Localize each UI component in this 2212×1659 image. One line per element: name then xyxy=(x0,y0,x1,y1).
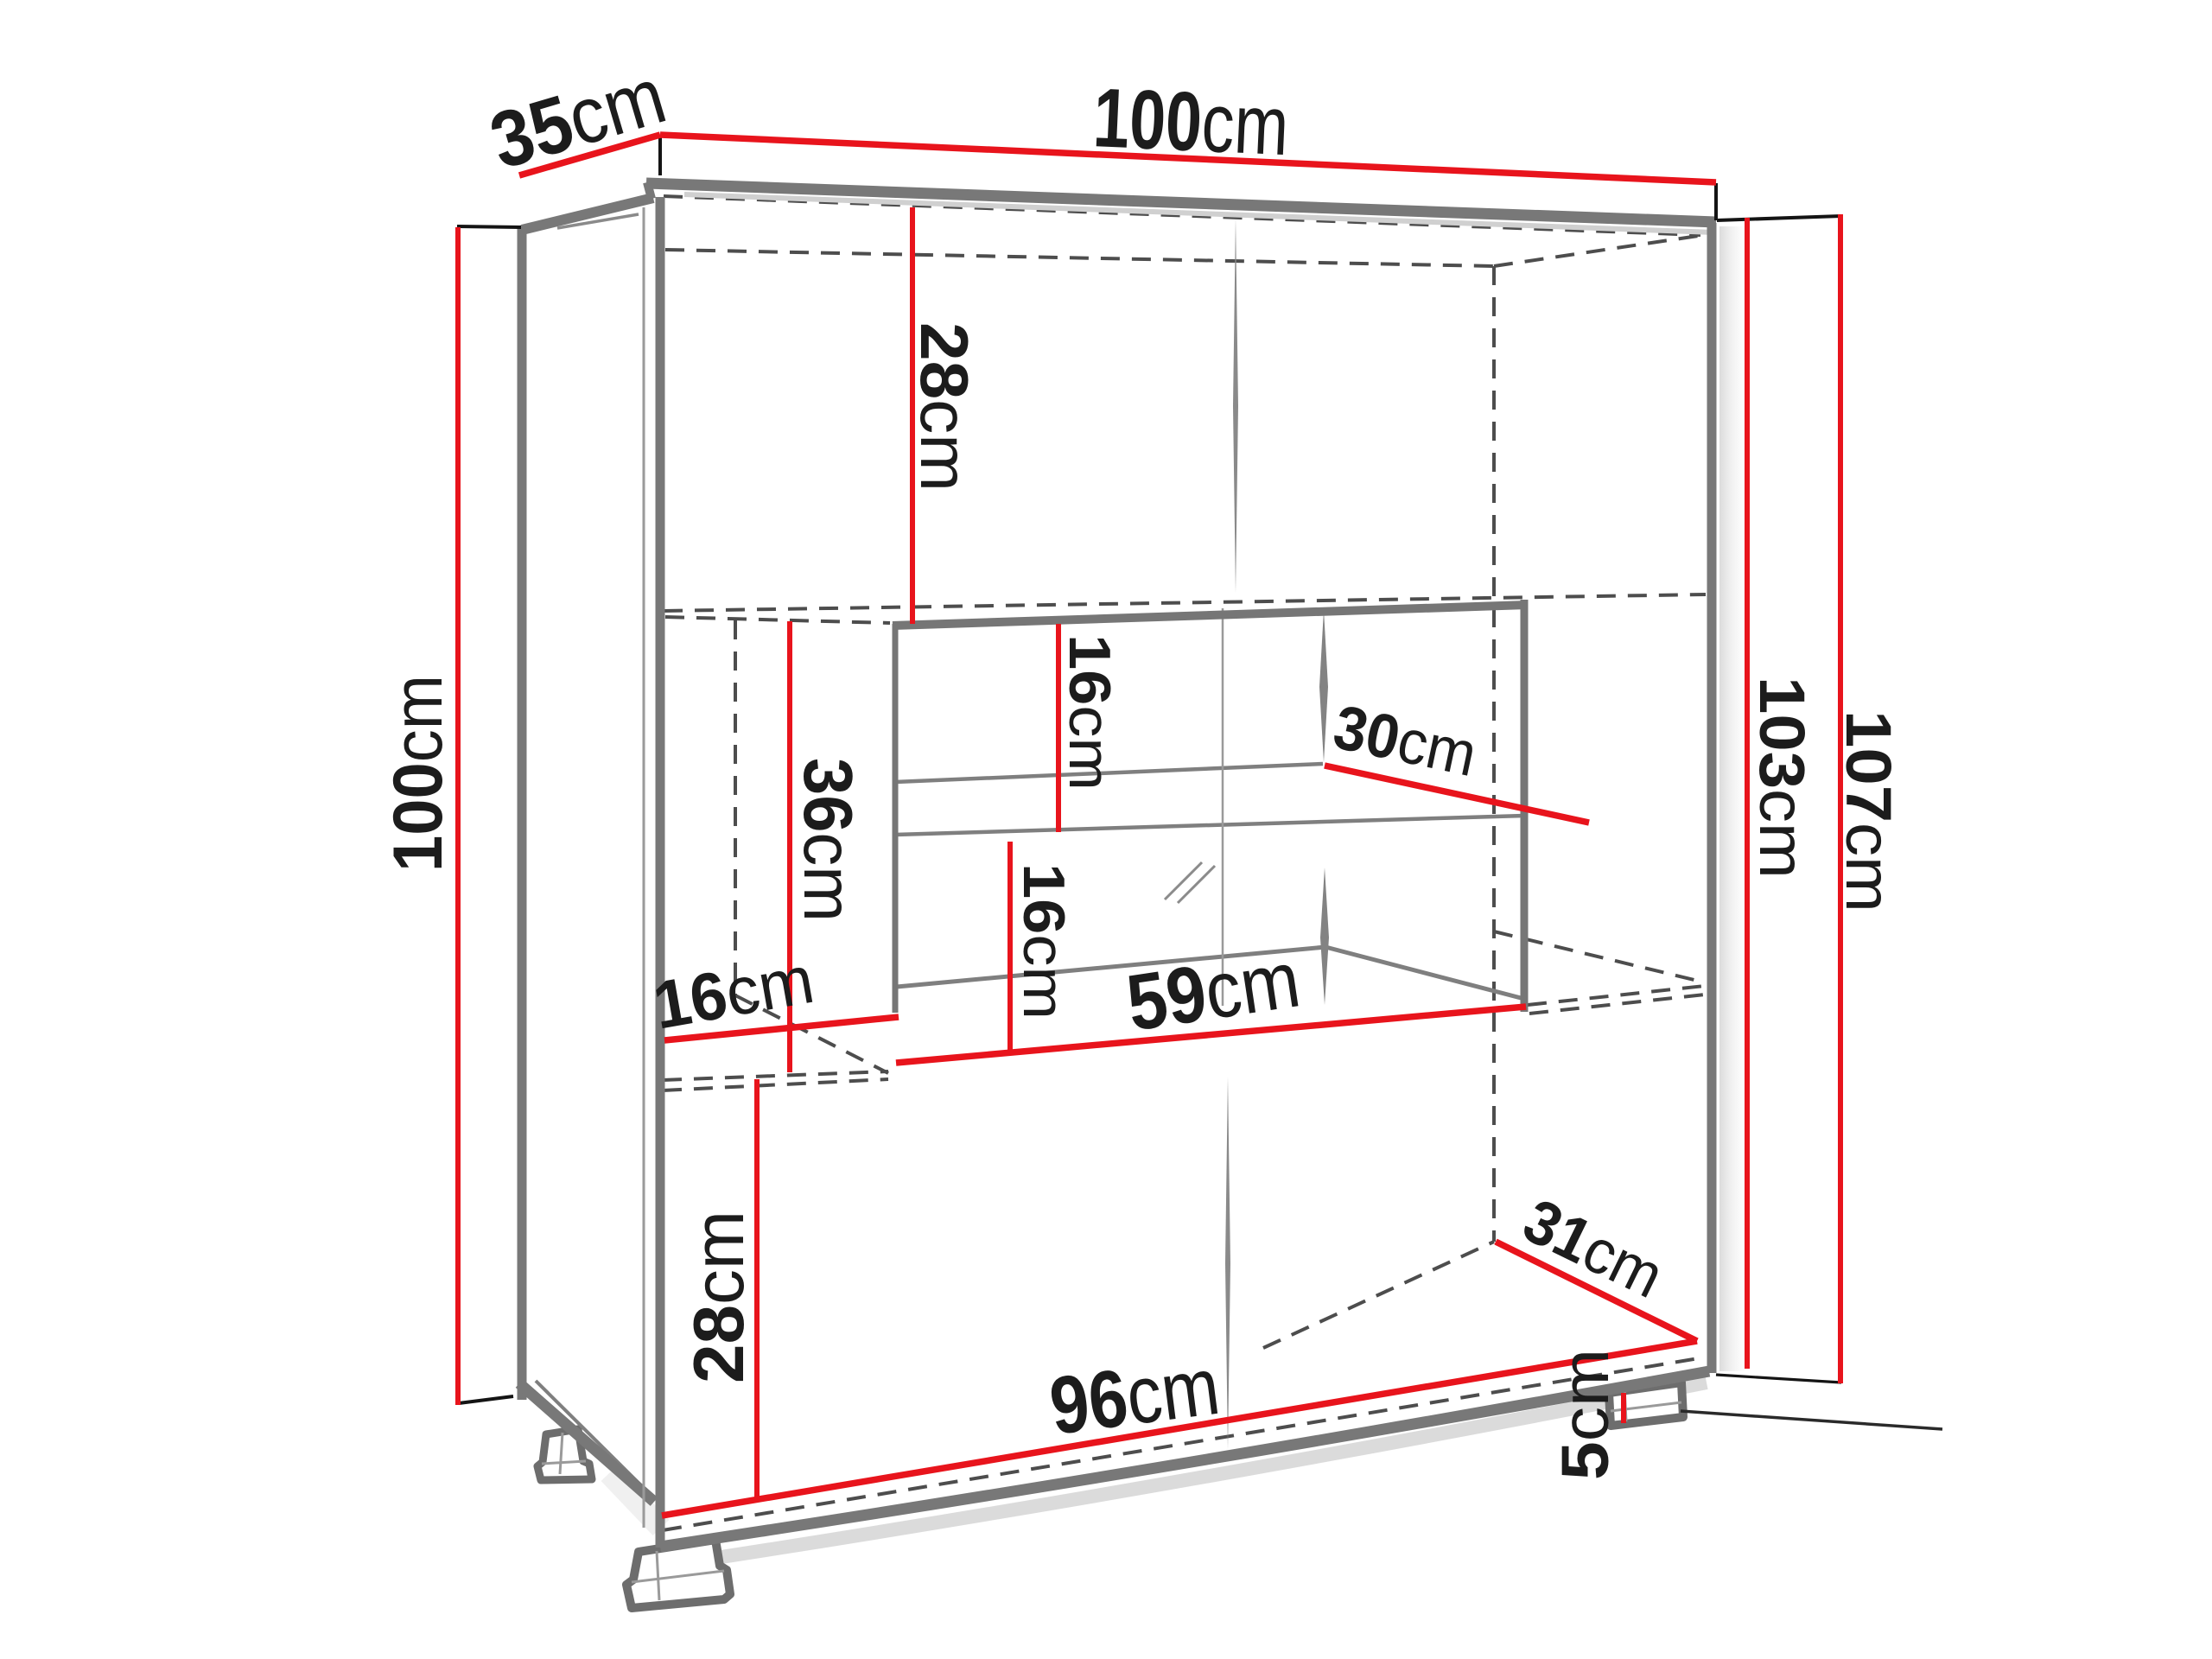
svg-text:103cm: 103cm xyxy=(1746,677,1818,879)
svg-text:100cm: 100cm xyxy=(1091,70,1291,173)
svg-text:28cm: 28cm xyxy=(906,322,982,492)
svg-text:107cm: 107cm xyxy=(1833,710,1904,912)
svg-text:5cm: 5cm xyxy=(1548,1349,1623,1480)
svg-text:36cm: 36cm xyxy=(790,758,867,922)
svg-text:28cm: 28cm xyxy=(678,1211,759,1383)
svg-text:100cm: 100cm xyxy=(379,675,457,872)
svg-text:16cm: 16cm xyxy=(1011,863,1077,1020)
svg-text:16cm: 16cm xyxy=(1057,634,1122,791)
